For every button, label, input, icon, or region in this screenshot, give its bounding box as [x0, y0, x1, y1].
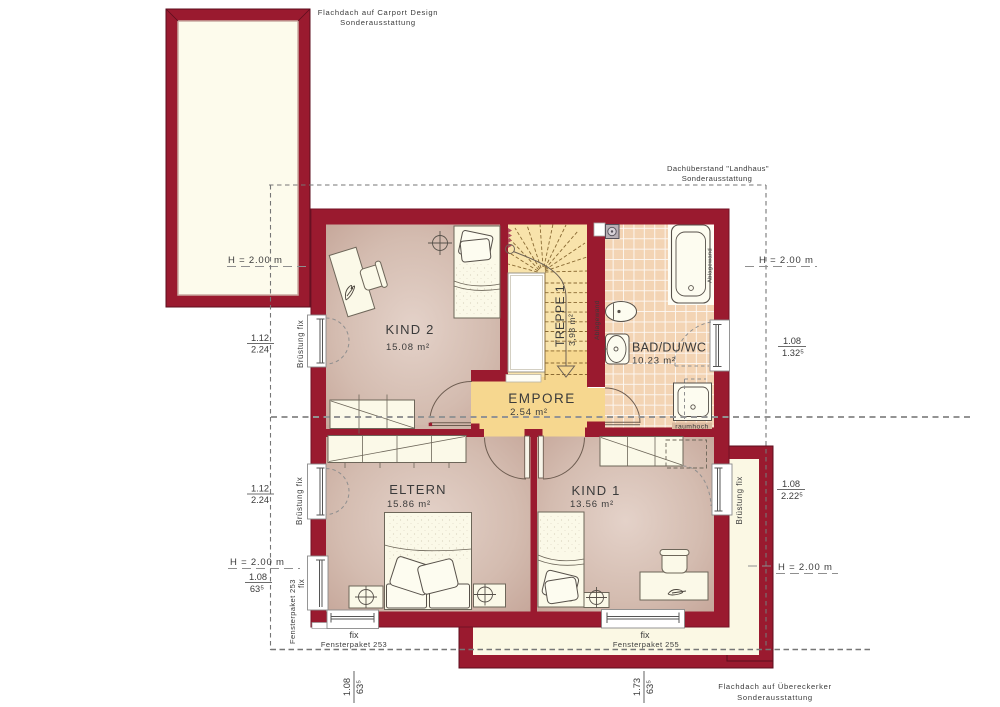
svg-text:15.86 m²: 15.86 m² — [387, 499, 431, 510]
svg-text:fix: fix — [641, 630, 651, 640]
svg-text:Brüstung fix: Brüstung fix — [735, 476, 744, 524]
svg-text:KIND 1: KIND 1 — [571, 483, 620, 498]
svg-text:13.56 m²: 13.56 m² — [570, 499, 614, 510]
svg-text:Flachdach auf Übereckerker: Flachdach auf Übereckerker — [718, 682, 832, 691]
svg-text:2.54 m²: 2.54 m² — [510, 407, 548, 418]
svg-text:10.23 m²: 10.23 m² — [632, 356, 676, 367]
svg-text:1.08: 1.08 — [342, 678, 352, 696]
svg-text:H = 2.00 m: H = 2.00 m — [778, 562, 833, 573]
svg-text:63⁵: 63⁵ — [250, 584, 264, 594]
svg-text:ELTERN: ELTERN — [389, 482, 447, 497]
svg-text:Sonderausstattung: Sonderausstattung — [737, 693, 813, 702]
svg-text:63⁵: 63⁵ — [355, 680, 365, 694]
svg-text:Flachdach auf Carport Design: Flachdach auf Carport Design — [318, 8, 438, 17]
svg-text:Brüstung fix: Brüstung fix — [295, 477, 304, 525]
svg-text:63⁵: 63⁵ — [645, 680, 655, 694]
svg-text:2.24: 2.24 — [251, 495, 269, 505]
svg-text:1.73: 1.73 — [632, 678, 642, 696]
svg-text:H = 2.00 m: H = 2.00 m — [759, 255, 814, 266]
svg-text:H = 2.00 m: H = 2.00 m — [230, 557, 285, 568]
svg-text:3,98 m²: 3,98 m² — [567, 314, 577, 346]
svg-text:Sonderausstattung: Sonderausstattung — [340, 18, 416, 27]
svg-text:1.08: 1.08 — [249, 572, 267, 582]
svg-text:1.12: 1.12 — [251, 333, 269, 343]
svg-text:fix: fix — [350, 630, 360, 640]
svg-text:1.12: 1.12 — [251, 484, 269, 494]
svg-text:Dachüberstand "Landhaus": Dachüberstand "Landhaus" — [667, 164, 769, 173]
svg-text:1.32⁵: 1.32⁵ — [782, 348, 804, 358]
svg-text:2.24: 2.24 — [251, 345, 269, 355]
svg-text:15.08 m²: 15.08 m² — [386, 342, 430, 353]
svg-text:EMPORE: EMPORE — [508, 391, 576, 406]
svg-text:BAD/DU/WC: BAD/DU/WC — [632, 341, 706, 355]
svg-text:1.08: 1.08 — [783, 336, 801, 346]
svg-text:Fensterpaket 253: Fensterpaket 253 — [288, 579, 297, 644]
svg-text:raumhoch: raumhoch — [675, 423, 708, 430]
svg-text:Brüstung fix: Brüstung fix — [296, 320, 305, 368]
svg-text:KIND 2: KIND 2 — [385, 322, 434, 337]
svg-text:fix: fix — [297, 579, 306, 588]
svg-text:Fensterpaket 255: Fensterpaket 255 — [613, 640, 679, 649]
svg-text:Ablagewand: Ablagewand — [708, 248, 714, 283]
svg-text:H = 2.00 m: H = 2.00 m — [228, 255, 283, 266]
svg-text:Fensterpaket 253: Fensterpaket 253 — [321, 640, 387, 649]
svg-text:Sonderausstattung: Sonderausstattung — [682, 174, 753, 183]
svg-text:Ablagewand: Ablagewand — [594, 300, 601, 340]
svg-text:TREPPE 1: TREPPE 1 — [553, 285, 567, 347]
svg-text:1.08: 1.08 — [782, 479, 800, 489]
svg-text:2.22⁵: 2.22⁵ — [781, 491, 803, 501]
